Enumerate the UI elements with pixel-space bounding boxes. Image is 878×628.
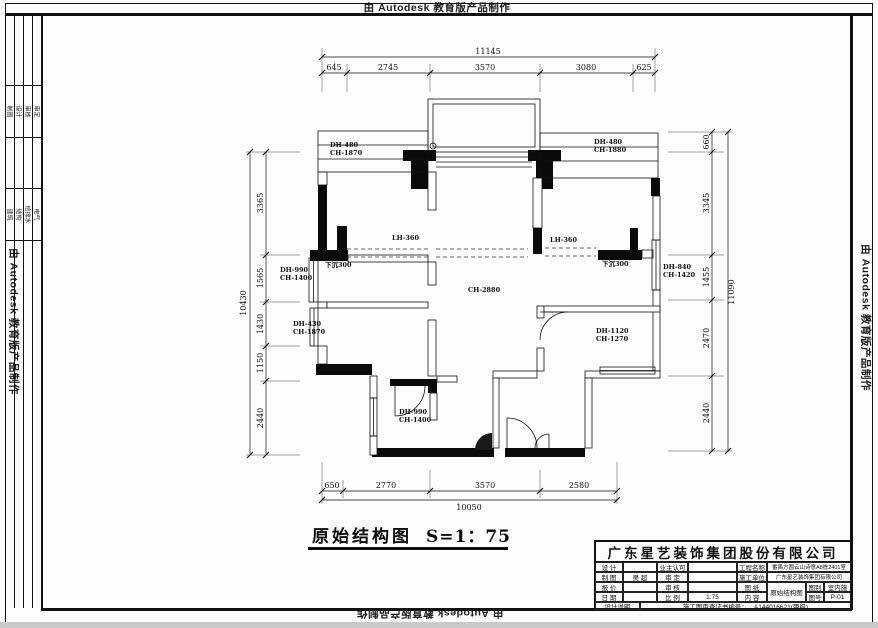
dim-label: 3365 [256, 193, 265, 213]
scale-value: 1:75 [688, 592, 737, 602]
contractor-label: 施工单位 [737, 572, 767, 582]
notes-label: 设计说明 [595, 602, 640, 610]
plan-label: CH-1400 [280, 274, 313, 282]
check-label: 审 核 [657, 582, 688, 592]
cad-sheet: 由 Autodesk 教育版产品制作 由 Autodesk 教育版产品制作 由 … [0, 0, 878, 628]
draft-label: 制 图 [595, 572, 623, 582]
dim-label: 2440 [256, 408, 265, 428]
cert-value: A144016621(甲级) [754, 602, 808, 610]
check-value [688, 582, 737, 592]
plan-label: LH-360 [392, 234, 419, 242]
drawing-name-cell: 原始结构图 [767, 582, 806, 602]
plan-label: CH-1870 [330, 149, 363, 157]
dim-label: 650 [324, 481, 339, 490]
dim-label: 1455 [702, 267, 711, 287]
design-label: 设 计 [595, 562, 623, 572]
dim-label: 3570 [475, 63, 495, 72]
number-value: P-01 [824, 592, 851, 602]
plan-label: CH-1270 [596, 335, 629, 343]
plan-label: CH-1420 [663, 271, 696, 279]
plan-label: 下沉300 [325, 260, 352, 269]
plan-label: CH-2880 [468, 286, 501, 294]
dim-label: 10050 [456, 503, 481, 512]
drawing-scale: S=1：75 [426, 527, 511, 547]
plan-label: CH-1400 [399, 416, 432, 424]
dim-label: 660 [702, 134, 711, 149]
dim-label: 645 [326, 63, 341, 72]
plan-label: DH-480 [594, 138, 623, 146]
cert-cell: 施工图审查证书编号： A144016621(甲级) [640, 602, 851, 610]
dim-label: 2440 [702, 403, 711, 423]
plan-label: DH-990 [399, 408, 428, 416]
dim-label: 2470 [702, 328, 711, 348]
quote-value [623, 582, 657, 592]
approve-value [688, 572, 737, 582]
contractor-value: 广东星艺装饰集团有限公司 [767, 572, 851, 582]
number-label: 图号 [806, 592, 824, 602]
company-name: 广东星艺装饰集团股份有限公司 [595, 541, 851, 562]
plan-labels-layer: DH-480 CH-1870 DH-480 CH-1880 DH-990 CH-… [280, 138, 696, 424]
dim-label: 11090 [727, 279, 736, 304]
date-value [623, 592, 657, 602]
dim-label: 11145 [475, 47, 500, 56]
dim-label: 1150 [256, 353, 265, 373]
owner-approval-label: 业主认可 [657, 562, 688, 572]
owner-approval-value [688, 562, 737, 572]
category-value: 室内施 [824, 582, 851, 592]
category-label: 图别 [806, 582, 824, 592]
plan-label: DH-1120 [596, 327, 629, 335]
plan-label: CH-1870 [293, 328, 326, 336]
dim-label: 3570 [475, 481, 495, 490]
drawing-title-underline [308, 547, 508, 550]
design-value [623, 562, 657, 572]
plan-label: DH-840 [663, 263, 692, 271]
dim-label: 10430 [239, 290, 248, 315]
dim-label: 2745 [378, 63, 398, 72]
walls-outline-layer [318, 172, 660, 455]
content-label: 内 容 [737, 592, 767, 602]
plan-label: 下沉300 [602, 259, 629, 268]
drawing-title-text: 原始结构图 [312, 527, 412, 547]
cert-label: 施工图审查证书编号： [683, 602, 748, 610]
approve-label: 审 定 [657, 572, 688, 582]
dim-label: 3080 [576, 63, 596, 72]
project-label: 工程名称 [737, 562, 767, 572]
project-value: 番禺方圆云山诗意A8栋2401室 [767, 562, 851, 572]
dim-label: 2770 [376, 481, 396, 490]
date-label: 日 期 [595, 592, 623, 602]
draft-value: 吴 超 [623, 572, 657, 582]
plan-label: DH-430 [293, 320, 322, 328]
sheet-label: 图 纸 [737, 582, 767, 592]
dim-label: 3345 [702, 193, 711, 213]
scale-label: 比 例 [657, 592, 688, 602]
dim-label: 1565 [256, 268, 265, 288]
dim-label: 1430 [256, 314, 265, 334]
quote-label: 报 价 [595, 582, 623, 592]
dim-label: 2580 [569, 481, 589, 490]
plan-label: DH-480 [330, 141, 359, 149]
plan-label: DH-990 [280, 266, 309, 274]
drawing-title: 原始结构图S=1：75 [312, 522, 511, 547]
plan-label: LH-360 [550, 236, 577, 244]
dim-label: 625 [636, 63, 651, 72]
plan-label: CH-1880 [594, 146, 627, 154]
